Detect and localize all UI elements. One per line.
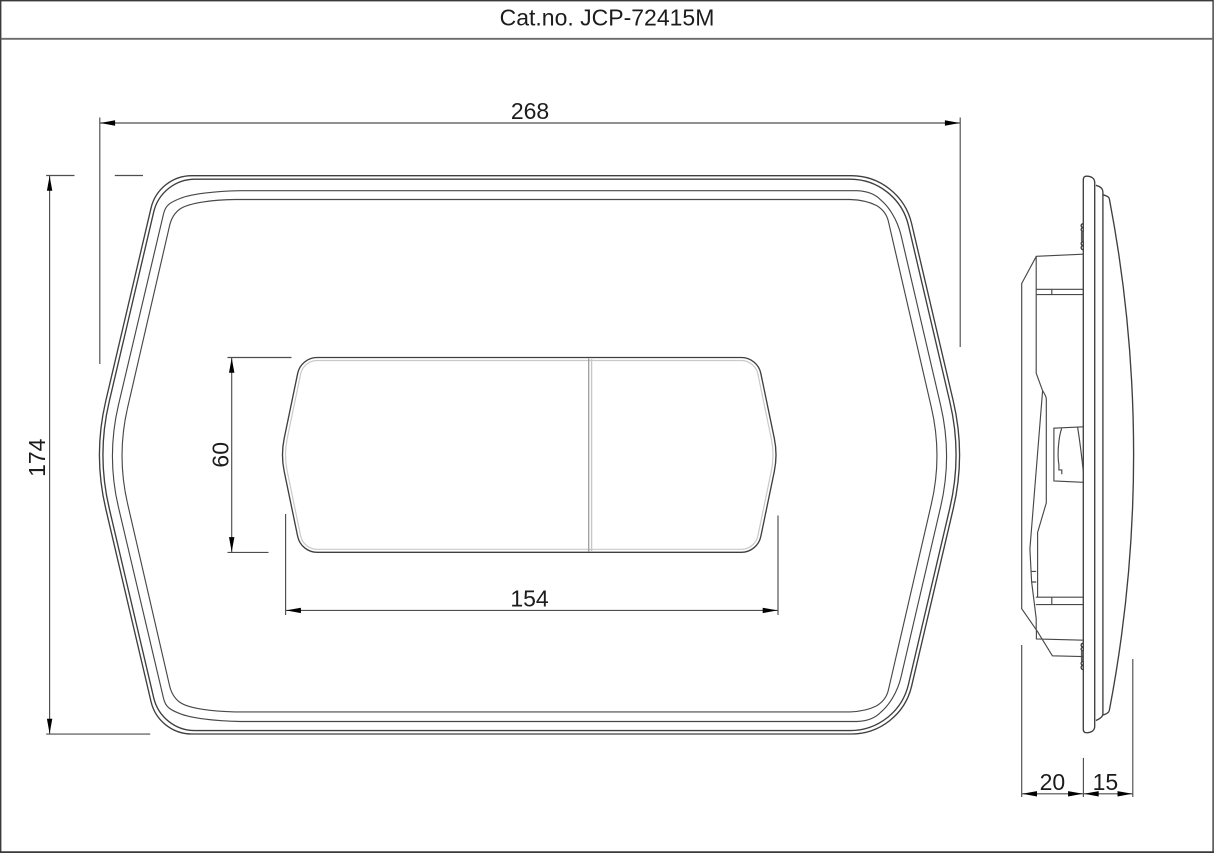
svg-text:268: 268 xyxy=(511,98,549,124)
svg-text:20: 20 xyxy=(1040,769,1066,795)
svg-text:15: 15 xyxy=(1093,769,1119,795)
svg-text:60: 60 xyxy=(208,442,234,468)
svg-text:Cat.no. JCP-72415M: Cat.no. JCP-72415M xyxy=(500,5,715,31)
svg-text:174: 174 xyxy=(24,438,50,477)
svg-text:154: 154 xyxy=(510,585,549,611)
